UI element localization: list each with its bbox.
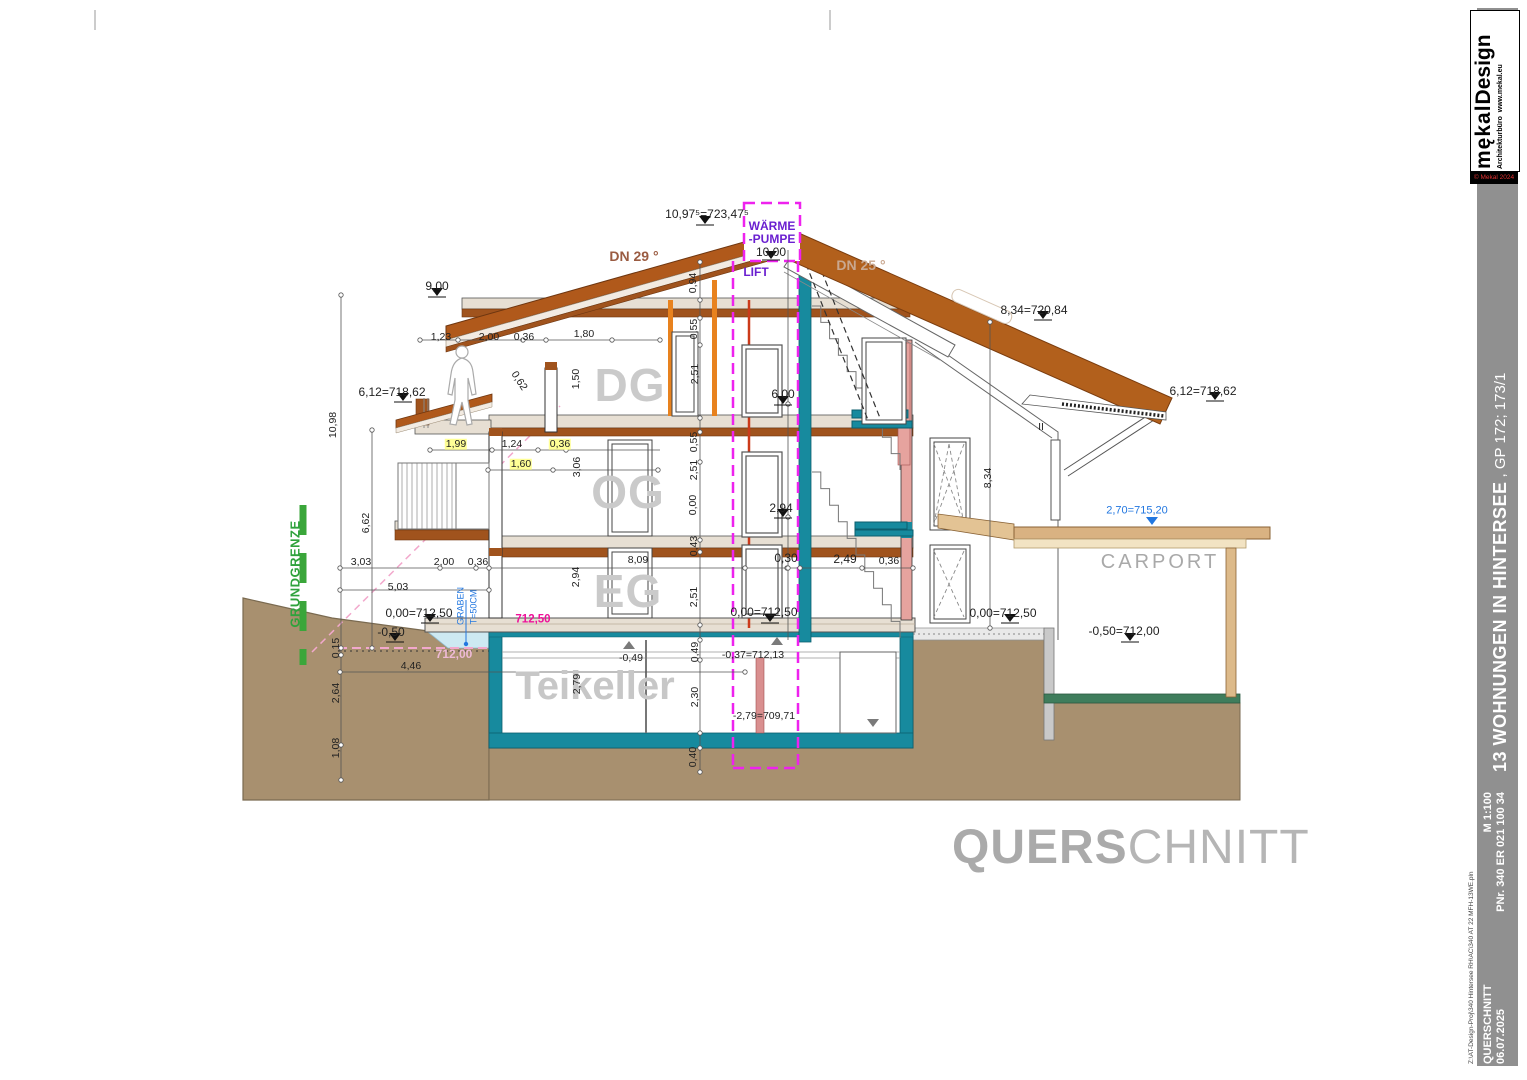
label-dim-049: 0,49 <box>690 642 701 662</box>
label-level-600: 6,00 <box>771 388 794 400</box>
label-level-minus050: -0,50 <box>377 626 404 638</box>
label-dim-180: 1,80 <box>574 329 594 340</box>
project-title-parcel: , GP 172; 173/1 <box>1492 373 1509 478</box>
label-carport-roof-level: 2,70=715,20 <box>1106 506 1167 517</box>
label-dim-251-og: 2,51 <box>689 460 700 480</box>
logo-brand-part2: Design <box>1472 34 1495 104</box>
logo-subtitle-url: www.mekal.eu <box>1497 64 1504 112</box>
date-value: 06.07.2025 <box>1495 1009 1508 1064</box>
label-dim-036-og: 0,36 <box>549 439 571 450</box>
label-level-834: 8,34=720,84 <box>1000 304 1067 316</box>
label-level-000-left: 0,00=712,50 <box>385 607 452 619</box>
label-dim-306: 3,06 <box>572 457 583 477</box>
label-dim-200-eg: 2,00 <box>434 557 454 568</box>
label-graben-label-2: T=50CM <box>470 590 479 625</box>
label-dim-108: 1,08 <box>331 738 342 758</box>
label-dim-062-slope: 0,62 <box>509 370 529 393</box>
label-heatpump-line1: WÄRME <box>749 220 796 232</box>
label-level-612-left: 6,12=718,62 <box>358 386 425 398</box>
annotation-layer: 10,97⁵=723,47⁵WÄRME-PUMPE10,00DN 29 °DN … <box>0 0 1527 1080</box>
label-dim-809: 8,09 <box>628 555 648 566</box>
label-floor-label-keller: Teikeller <box>515 666 674 706</box>
logo-box: mękalDesign Architekturbüro www.mekal.eu <box>1470 10 1520 172</box>
label-dim-036-stair: 0,36 <box>879 556 899 567</box>
scale-block: QUERSCHNITT M 1:100 06.07.2025 PNr. 340 … <box>1482 792 1508 1064</box>
label-level-612-right: 6,12=718,62 <box>1169 385 1236 397</box>
label-parallel-mark: II <box>1038 422 1044 433</box>
label-dim-230: 2,30 <box>690 687 701 707</box>
label-dim-303: 3,03 <box>351 557 371 568</box>
label-dim-123: 1,23 <box>431 332 451 343</box>
label-dim-000-og: 0,00 <box>688 495 699 515</box>
plan-sheet: 10,97⁵=723,47⁵WÄRME-PUMPE10,00DN 29 °DN … <box>0 0 1527 1080</box>
label-dim-036-eg: 0,36 <box>468 557 488 568</box>
logo-subtitle-office: Architekturbüro <box>1497 116 1504 169</box>
label-dim-294-eg: 2,94 <box>571 567 582 587</box>
logo-brand-part1: mękal <box>1472 104 1495 169</box>
label-grundgrenze-label: GRUNDGRENZE <box>289 520 302 627</box>
label-carport-label: CARPORT <box>1101 552 1219 572</box>
project-title: 13 WOHNUNGEN IN HINTERSEE , GP 172; 173/… <box>1481 182 1519 772</box>
label-dim-249: 2,49 <box>833 553 856 565</box>
label-level-000-mid: 0,00=712,50 <box>730 606 797 618</box>
label-floor-label-og: OG <box>591 469 665 515</box>
label-dim-036-dg: 0,36 <box>514 332 534 343</box>
sheet-title: QUERSCHNITT <box>952 820 1310 875</box>
label-dim-503: 5,03 <box>388 582 408 593</box>
label-dim-055-top: 0,55 <box>689 319 700 339</box>
label-heatpump-line2: -PUMPE <box>749 233 796 245</box>
label-level-minus279: -2,79=709,71 <box>733 711 795 722</box>
label-dim-662: 6,62 <box>361 513 372 533</box>
label-heatpump-level: 10,00 <box>756 246 786 258</box>
sheet-title-bold: QUERS <box>952 821 1128 874</box>
label-dim-094: 0,94 <box>688 273 699 293</box>
project-title-main: 13 WOHNUNGEN IN HINTERSEE <box>1490 481 1511 772</box>
label-floor-label-eg: EG <box>594 568 662 614</box>
label-dim-279: 2,79 <box>572 674 583 694</box>
sheet-title-light: CHNITT <box>1128 821 1310 874</box>
label-eave-level-left-top: 9,00 <box>425 280 448 292</box>
label-level-71200: 712,00 <box>436 648 473 660</box>
label-dim-150: 1,50 <box>571 369 582 389</box>
label-roof-pitch-left: DN 29 ° <box>609 249 658 263</box>
label-graben-label-1: GRABEN <box>457 587 466 625</box>
label-dim-030: 0,30 <box>774 552 797 564</box>
label-dim-055-og: 0,55 <box>689 432 700 452</box>
logo-subtitle: Architekturbüro www.mekal.eu <box>1497 13 1504 169</box>
label-level-minus049: -0,49 <box>619 653 643 664</box>
label-dim-251-eg: 2,51 <box>689 587 700 607</box>
label-dim-043: 0,43 <box>689 536 700 556</box>
label-level-000-right: 0,00=712,50 <box>969 607 1036 619</box>
label-level-71250: 712,50 <box>515 614 550 626</box>
label-dim-264: 2,64 <box>331 683 342 703</box>
label-level-294: 2,94 <box>769 502 792 514</box>
label-floor-label-dg: DG <box>595 362 666 408</box>
label-dim-200-dg: 2,00 <box>479 332 499 343</box>
label-dim-015: 0,15 <box>331 638 342 658</box>
label-roof-pitch-right: DN 25 ° <box>836 258 885 272</box>
label-dim-124: 1,24 <box>502 439 522 450</box>
label-lift-label: LIFT <box>743 266 768 278</box>
label-level-minus037: -0,37=712,13 <box>722 650 784 661</box>
file-path: Z:\AT-Design-Proj\340 Hintersee RH\AC\34… <box>1468 784 1475 1064</box>
scale-value: M 1:100 <box>1482 792 1495 832</box>
plan-number: PNr. 340 ER 021 100 34 <box>1495 792 1508 912</box>
label-ridge-level: 10,97⁵=723,47⁵ <box>665 208 749 220</box>
label-dim-446: 4,46 <box>401 661 421 672</box>
label-dim-834: 8,34 <box>983 468 994 488</box>
label-dim-1098: 10,98 <box>328 412 339 438</box>
logo-brand: mękalDesign <box>1473 13 1495 169</box>
doc-type: QUERSCHNITT <box>1482 985 1495 1064</box>
label-dim-199: 1,99 <box>445 439 467 450</box>
label-carport-ground-level: -0,50=712,00 <box>1088 625 1159 637</box>
label-dim-251-dg: 2,51 <box>690 364 701 384</box>
label-dim-040: 0,40 <box>688 747 699 767</box>
label-dim-160: 1,60 <box>510 459 532 470</box>
